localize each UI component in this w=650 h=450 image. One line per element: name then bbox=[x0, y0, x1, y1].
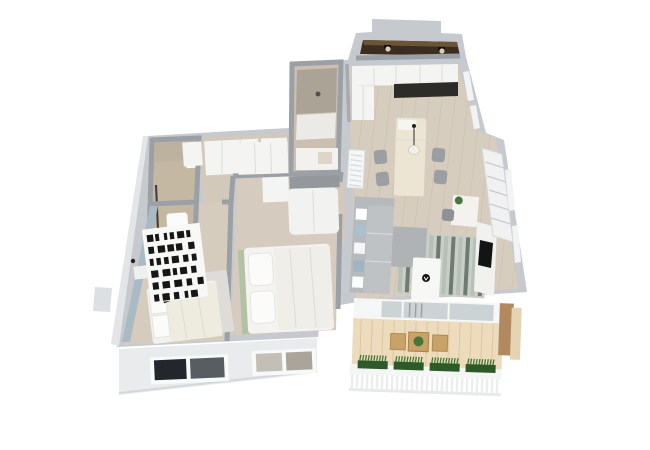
bedroom1-pillow bbox=[152, 314, 171, 338]
dining-chair bbox=[431, 148, 445, 163]
balcony-chair bbox=[390, 333, 406, 350]
shower-glass bbox=[296, 68, 337, 114]
book bbox=[183, 254, 189, 262]
shower-room bbox=[291, 62, 341, 176]
book bbox=[191, 253, 197, 261]
book bbox=[167, 244, 174, 252]
balcony-chair bbox=[432, 335, 448, 352]
window-pane bbox=[256, 353, 283, 372]
dining-chair bbox=[373, 149, 387, 164]
bedroom2-wardrobe bbox=[237, 141, 288, 175]
west-wall-pilaster bbox=[93, 287, 112, 312]
book bbox=[191, 265, 197, 273]
book bbox=[162, 281, 170, 289]
window-pane bbox=[190, 357, 225, 378]
south-wall-elevation bbox=[119, 338, 317, 395]
loggia bbox=[356, 40, 460, 58]
floor-plan-render bbox=[0, 0, 650, 450]
book bbox=[180, 267, 188, 275]
hall-cabinet bbox=[182, 141, 203, 166]
tv bbox=[478, 240, 493, 268]
book bbox=[174, 279, 183, 287]
office-chair bbox=[441, 208, 454, 221]
book bbox=[177, 231, 185, 239]
sofa-pillow bbox=[355, 208, 367, 220]
book bbox=[156, 258, 161, 265]
plank-line bbox=[523, 55, 551, 305]
book bbox=[186, 278, 192, 286]
loggia-light-1 bbox=[385, 46, 390, 51]
book bbox=[169, 232, 174, 239]
planter-box bbox=[430, 363, 460, 372]
planter-box bbox=[358, 360, 388, 369]
book bbox=[174, 292, 180, 300]
book bbox=[197, 277, 204, 285]
bedroom2-pillow bbox=[250, 291, 276, 324]
book bbox=[162, 293, 170, 301]
sofa-pillow bbox=[353, 260, 365, 272]
window-pane-dark bbox=[154, 359, 187, 380]
bedroom2-duvet bbox=[274, 246, 334, 331]
kitchen-island bbox=[394, 118, 427, 197]
radiator bbox=[347, 150, 365, 189]
book bbox=[157, 245, 165, 253]
book bbox=[188, 242, 195, 250]
book bbox=[147, 234, 154, 242]
book bbox=[191, 289, 199, 297]
loggia-kitchen-wall bbox=[356, 56, 460, 58]
plank-line bbox=[510, 55, 538, 305]
book bbox=[151, 270, 159, 278]
dining-chair bbox=[375, 171, 389, 186]
sofa-pillow bbox=[355, 224, 367, 236]
window-pane bbox=[286, 351, 313, 370]
book bbox=[148, 246, 155, 254]
pendant-lamp bbox=[409, 146, 420, 155]
book bbox=[171, 256, 179, 264]
book bbox=[154, 294, 160, 302]
bedroom2-pillow bbox=[248, 253, 274, 286]
book bbox=[176, 243, 183, 251]
sofa-pillow bbox=[354, 242, 366, 254]
book bbox=[162, 269, 171, 277]
planter-box bbox=[465, 364, 495, 373]
balcony bbox=[349, 298, 522, 397]
planter-box bbox=[394, 361, 424, 370]
floor-lamp bbox=[131, 259, 135, 263]
book bbox=[172, 268, 177, 275]
bedroom2-dresser bbox=[287, 175, 341, 235]
coffee-table-group bbox=[411, 257, 441, 300]
book bbox=[152, 282, 159, 290]
bath-towel bbox=[318, 152, 332, 164]
floor-plan-svg bbox=[0, 0, 650, 450]
curtain bbox=[357, 300, 382, 317]
sofa-pillow bbox=[352, 276, 364, 288]
desk-group bbox=[451, 195, 480, 227]
sofa-seat bbox=[364, 205, 395, 294]
nightstand bbox=[133, 265, 147, 279]
shower-head bbox=[316, 92, 321, 97]
book bbox=[186, 230, 191, 237]
balcony-side-wall bbox=[510, 308, 522, 360]
glass-pane bbox=[449, 303, 494, 321]
dining-chair bbox=[433, 170, 447, 185]
bookshelf-group bbox=[142, 223, 209, 304]
bedroom2-bed-group bbox=[238, 244, 334, 335]
kitchen-countertop bbox=[394, 82, 458, 98]
book bbox=[164, 257, 169, 265]
loggia-light-2 bbox=[439, 48, 444, 53]
shower-tray bbox=[296, 113, 336, 140]
